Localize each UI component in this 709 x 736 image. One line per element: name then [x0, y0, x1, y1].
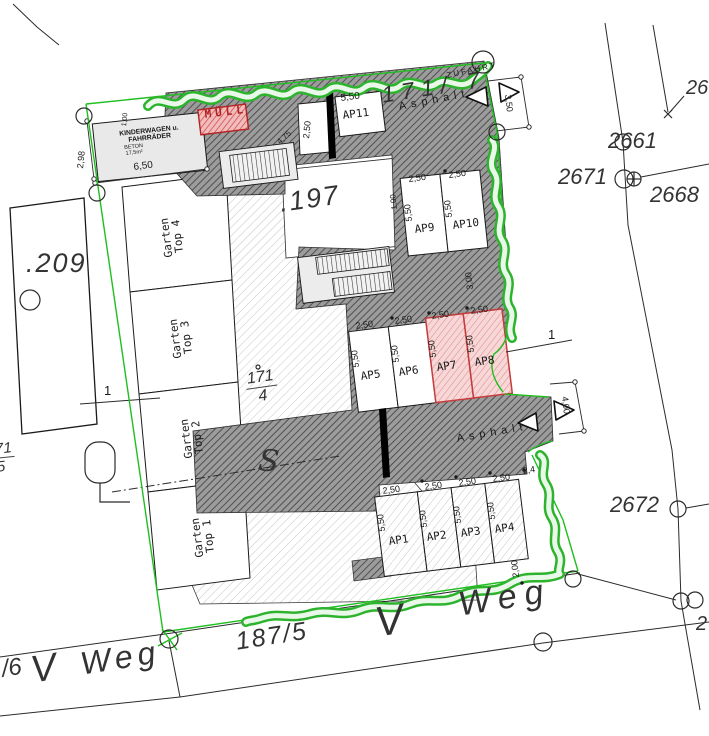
dim-400-tick1: [550, 382, 575, 384]
survey-point: [565, 571, 581, 587]
garden-label-line2: Top 2: [190, 420, 205, 454]
weg-corner-line: [578, 574, 676, 600]
dim-300: 3,00: [464, 272, 475, 290]
dim-400-line: [575, 382, 584, 431]
corner-dot: [465, 306, 468, 309]
ap3-id: AP3: [460, 525, 481, 539]
corner-topleft-line: [13, 4, 59, 45]
dim-298: 2,98: [76, 151, 87, 169]
tree-symbol: [85, 442, 115, 483]
dim-100-mid: 1,00: [389, 194, 399, 210]
weg-left-corner: [169, 641, 180, 697]
section-marker-right: 1: [548, 328, 555, 341]
dim-350-tick2: [496, 127, 529, 131]
dim-endpoint: [205, 167, 209, 171]
ap5-id: AP5: [360, 368, 381, 382]
ap9-depth: 5,50: [403, 204, 414, 222]
parcel-6-partial: /6: [0, 655, 24, 682]
sewer-s-marker: S: [257, 446, 281, 478]
dim-endpoint: [519, 75, 523, 79]
survey-point: [76, 108, 92, 124]
ap1-depth: 5,50: [376, 514, 387, 532]
parcel-209: .209: [26, 250, 87, 277]
boundary-2671-spur: [641, 164, 709, 177]
ap1-id: AP1: [388, 533, 409, 547]
dim-400: 4,00: [560, 396, 571, 414]
garden-label-line2: Top 3: [179, 320, 194, 354]
boundary-2672-spur: [686, 504, 709, 508]
ap6-id: AP6: [398, 364, 419, 378]
ap10-id: AP10: [452, 217, 480, 231]
dim-240: 2,4: [522, 465, 536, 476]
boundary-right-2: [653, 25, 668, 112]
leader-26: [670, 96, 684, 112]
dim-endpoint: [573, 380, 577, 384]
parcel-2672: 2672: [610, 494, 659, 516]
ap4-depth: 5,50: [486, 502, 497, 520]
ap8-depth: 5,50: [465, 335, 476, 353]
dim-200: 2,00: [510, 560, 521, 578]
corner-dot: [443, 169, 446, 172]
dim-100-top: 1,00: [121, 112, 129, 126]
ap6-depth: 5,50: [390, 345, 401, 363]
ap9-id: AP9: [414, 222, 435, 235]
ap10-depth: 5,50: [443, 200, 454, 218]
site-plan-canvas: 26 2661 2671 2668 2672 2 .209 .197 171/ …: [0, 0, 709, 736]
garden-label-line2: Top 1: [201, 519, 216, 553]
section-tick-right: [506, 340, 572, 352]
ap2-id: AP2: [426, 529, 447, 543]
dim-400-tick2: [559, 431, 584, 434]
ap2-depth: 5,50: [418, 510, 429, 528]
survey-point: [89, 185, 105, 201]
garden-label-line2: Top 4: [170, 219, 185, 253]
dim-350-line: [521, 77, 529, 127]
ap8-id: AP8: [474, 354, 495, 368]
parcel-2661: 2661: [608, 130, 657, 152]
ap11-id: AP11: [342, 107, 370, 121]
ap11-width: 2,50: [302, 121, 313, 139]
section-marker-left: 1: [104, 384, 111, 397]
tree-symbol-stem: [100, 483, 130, 502]
parcel-171-4: 171 4: [244, 368, 279, 407]
ap4-id: AP4: [494, 521, 515, 535]
parcel-26-partial: 26: [686, 78, 708, 98]
dim-350-tick1: [488, 77, 521, 81]
beton-label: BETON 17,5m²: [124, 144, 144, 157]
parcel-2668: 2668: [650, 184, 699, 206]
dim-350: 3,50: [503, 94, 514, 112]
ap7-id: AP7: [436, 359, 457, 373]
ap3-depth: 5,50: [452, 506, 463, 524]
neighbour-building-209: [10, 198, 97, 434]
parcel-171-5-denominator: 5: [0, 457, 16, 476]
parcel-2671: 2671: [558, 166, 607, 188]
ap7-depth: 5,50: [427, 340, 438, 358]
dim-endpoint: [527, 125, 531, 129]
dim-endpoint: [92, 177, 96, 181]
parcel-2-partial: 2: [696, 614, 707, 634]
ap5-depth: 5,50: [350, 350, 361, 368]
dim-endpoint: [582, 429, 586, 433]
